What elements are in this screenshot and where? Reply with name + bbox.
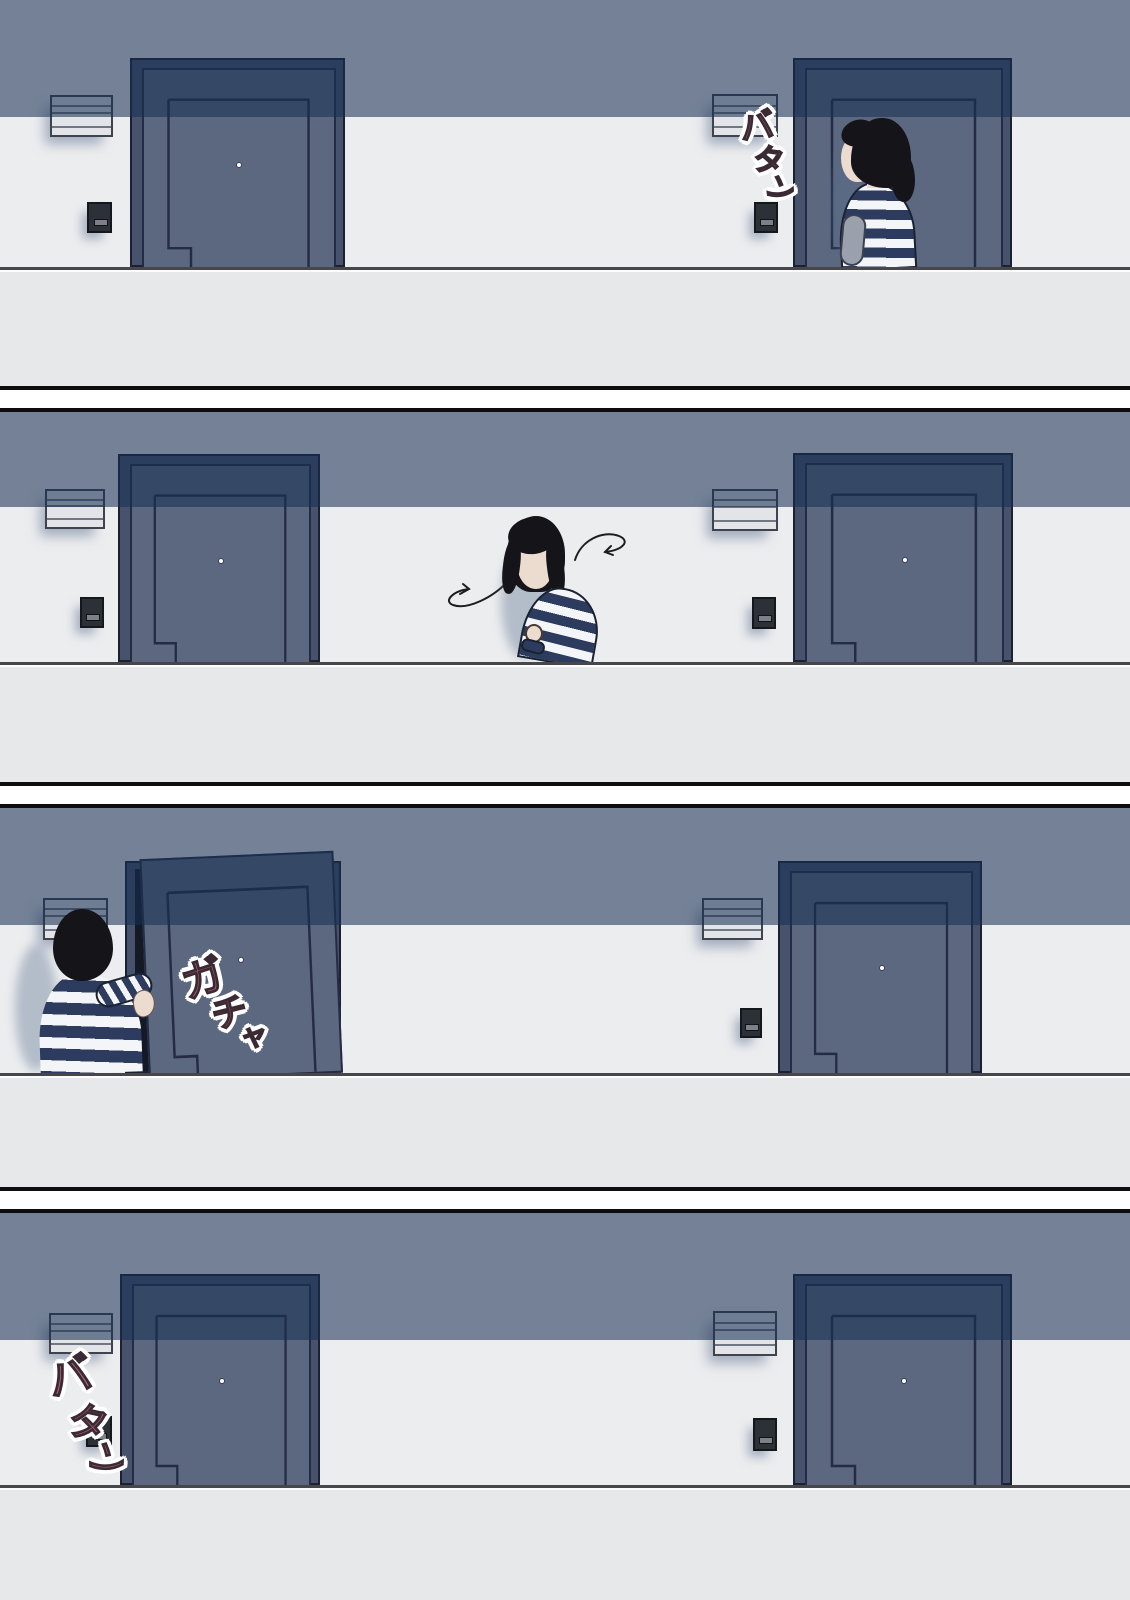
intercom-button [760,219,774,226]
intercom-button [758,615,772,622]
louver-line [714,520,776,522]
louver-line [704,929,761,931]
left-doorbell-intercom [80,597,104,628]
panel-gutter [0,782,1130,808]
right-doorbell-intercom [740,1008,762,1038]
louver-line [52,126,111,128]
peephole-dot [902,557,908,563]
overhang-shadow [0,1213,1130,1340]
panel-1: バ タ ン [0,0,1130,386]
sfx-gacha: ガ チ ャ [182,958,292,1078]
peephole-dot [219,1378,225,1384]
walkway-ledge [0,1078,1130,1187]
peephole-dot [901,1378,907,1384]
walkway-ledge [0,272,1130,386]
sfx-batan: バ タ ン [46,1356,156,1496]
panel-4: バ タ ン [0,1213,1130,1600]
walkway-ledge [0,667,1130,782]
hair-back [891,152,915,202]
intercom-button [94,219,108,226]
peephole-dot [879,965,885,971]
right-doorbell-intercom [752,597,776,629]
intercom-button [86,614,100,621]
woman-opening-left-door [15,903,180,1073]
panel-gutter [0,1187,1130,1213]
motion-swirl-right-icon [573,528,633,572]
intercom-button [759,1437,773,1444]
louver-line [47,518,103,520]
woman-at-right-door [835,118,920,267]
louver-line [715,1344,775,1346]
sfx-batan: バ タ ン [736,110,816,220]
sfx-char: バ [43,1351,96,1404]
woman-looking-around [445,512,630,662]
left-doorbell-intercom [87,202,112,233]
louver-line [51,1343,111,1345]
panel-gutter [0,386,1130,412]
bob-hair-back [53,909,113,981]
right-doorbell-intercom [753,1418,777,1451]
panel-3: ガ チ ャ [0,808,1130,1187]
peephole-dot [236,162,242,168]
walkway-ledge [0,1490,1130,1600]
overhang-shadow [0,0,1130,117]
peephole-dot [218,558,224,564]
sfx-char: ャ [238,1020,270,1052]
panel-2 [0,412,1130,782]
overhang-shadow [0,412,1130,507]
intercom-button [745,1024,759,1031]
comic-page: バ タ ン [0,0,1130,1600]
